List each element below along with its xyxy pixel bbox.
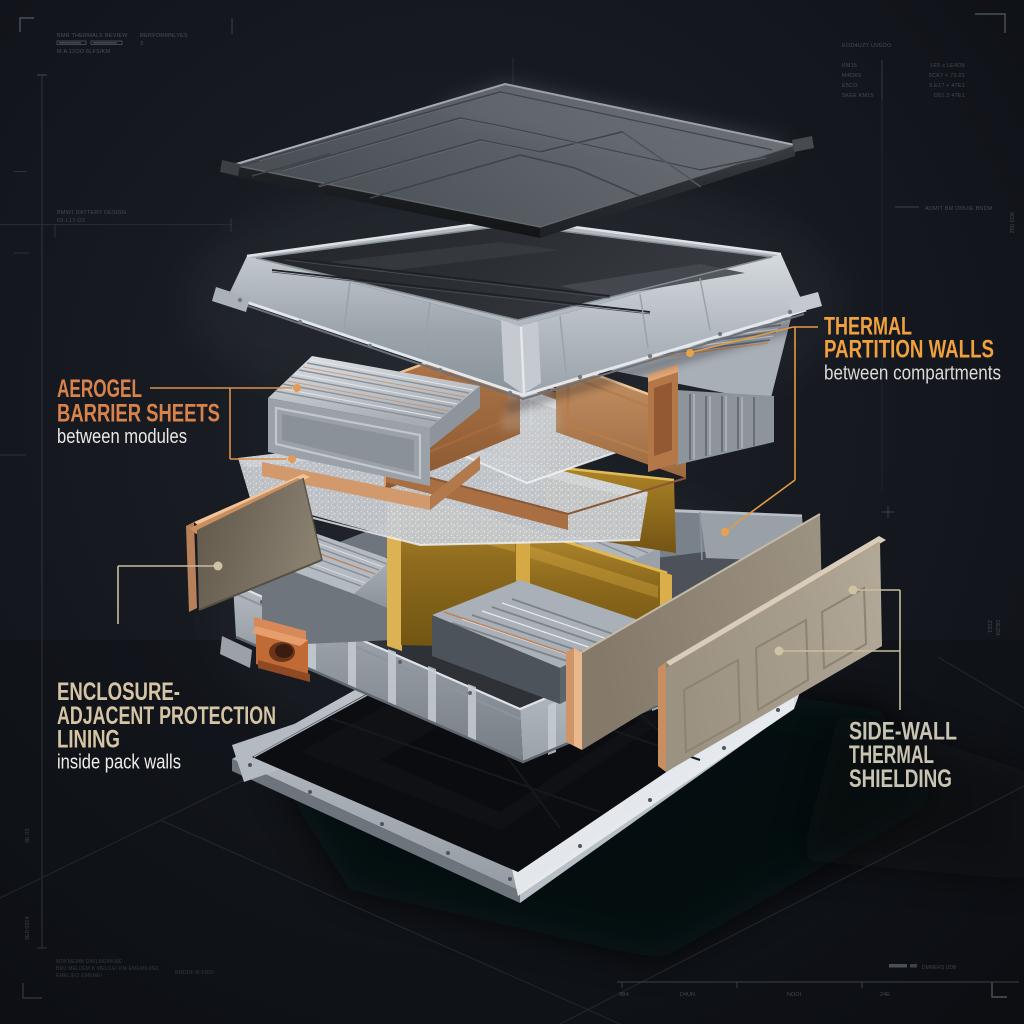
svg-text:between compartments: between compartments: [824, 362, 1001, 385]
svg-text:RERFORMNLYES: RERFORMNLYES: [140, 33, 188, 39]
svg-text:BMDDF M FDDI: BMDDF M FDDI: [175, 970, 214, 976]
svg-text:ADMIT BM DMUIE BNDM: ADMIT BM DMUIE BNDM: [925, 206, 993, 212]
svg-text:5KEE KM15: 5KEE KM15: [842, 93, 874, 99]
svg-text:24E: 24E: [880, 992, 890, 998]
svg-text:LINING: LINING: [57, 726, 120, 754]
svg-text:BMW1 BATTERY DESIGN: BMW1 BATTERY DESIGN: [57, 210, 126, 216]
svg-text:D4UN: D4UN: [680, 992, 695, 998]
svg-text:9B4: 9B4: [619, 992, 629, 998]
svg-text:E5CO: E5CO: [842, 83, 858, 89]
svg-text:M4DK5: M4DK5: [842, 73, 861, 79]
svg-text:BMR THERMALS REVIEW: BMR THERMALS REVIEW: [57, 33, 128, 39]
svg-text:9E0 0314: 9E0 0314: [25, 916, 31, 940]
svg-text:between modules: between modules: [57, 425, 187, 448]
svg-text:Z1E1: Z1E1: [986, 620, 992, 633]
svg-text:SHIELDING: SHIELDING: [849, 765, 952, 793]
svg-text:9E 03: 9E 03: [25, 829, 31, 843]
svg-text:PARTITION WALLS: PARTITION WALLS: [824, 336, 994, 364]
svg-text:M.A 12OO 6LFS/KM: M.A 12OO 6LFS/KM: [57, 49, 111, 55]
svg-text:inside pack walls: inside pack walls: [57, 751, 181, 774]
svg-text:9.E1? + 47E1: 9.E1? + 47E1: [929, 83, 965, 89]
svg-text:1E5 x LE4O5: 1E5 x LE4O5: [930, 63, 965, 69]
svg-text:5CK7 + 72.01: 5CK7 + 72.01: [929, 73, 965, 79]
svg-text:EMELIEO EMEMEI: EMELIEO EMEMEI: [56, 973, 102, 979]
svg-text:9O5 09Z: 9O5 09Z: [1008, 212, 1014, 234]
svg-text:BARRIER SHEETS: BARRIER SHEETS: [57, 400, 220, 428]
svg-text:63-L17-O3: 63-L17-O3: [57, 218, 85, 224]
svg-text:3: 3: [140, 41, 143, 47]
svg-text:EOD4UZY UVEDO: EOD4UZY UVEDO: [842, 43, 892, 49]
svg-text:DMMERS UDB: DMMERS UDB: [922, 965, 957, 971]
svg-text:O51.2 47E1: O51.2 47E1: [934, 93, 965, 99]
svg-text:NOOI: NOOI: [787, 992, 802, 998]
svg-text:KM15: KM15: [842, 63, 857, 69]
svg-text:DEZM: DEZM: [994, 620, 1000, 636]
svg-text:BMJ MELI/EM K MEL/LE/ KM EMEMI: BMJ MELI/EM K MEL/LE/ KM EMEMILMEL: [56, 966, 160, 972]
svg-text:MDKMEMM DM/LMEMKME: MDKMEMM DM/LMEMKME: [56, 959, 123, 965]
